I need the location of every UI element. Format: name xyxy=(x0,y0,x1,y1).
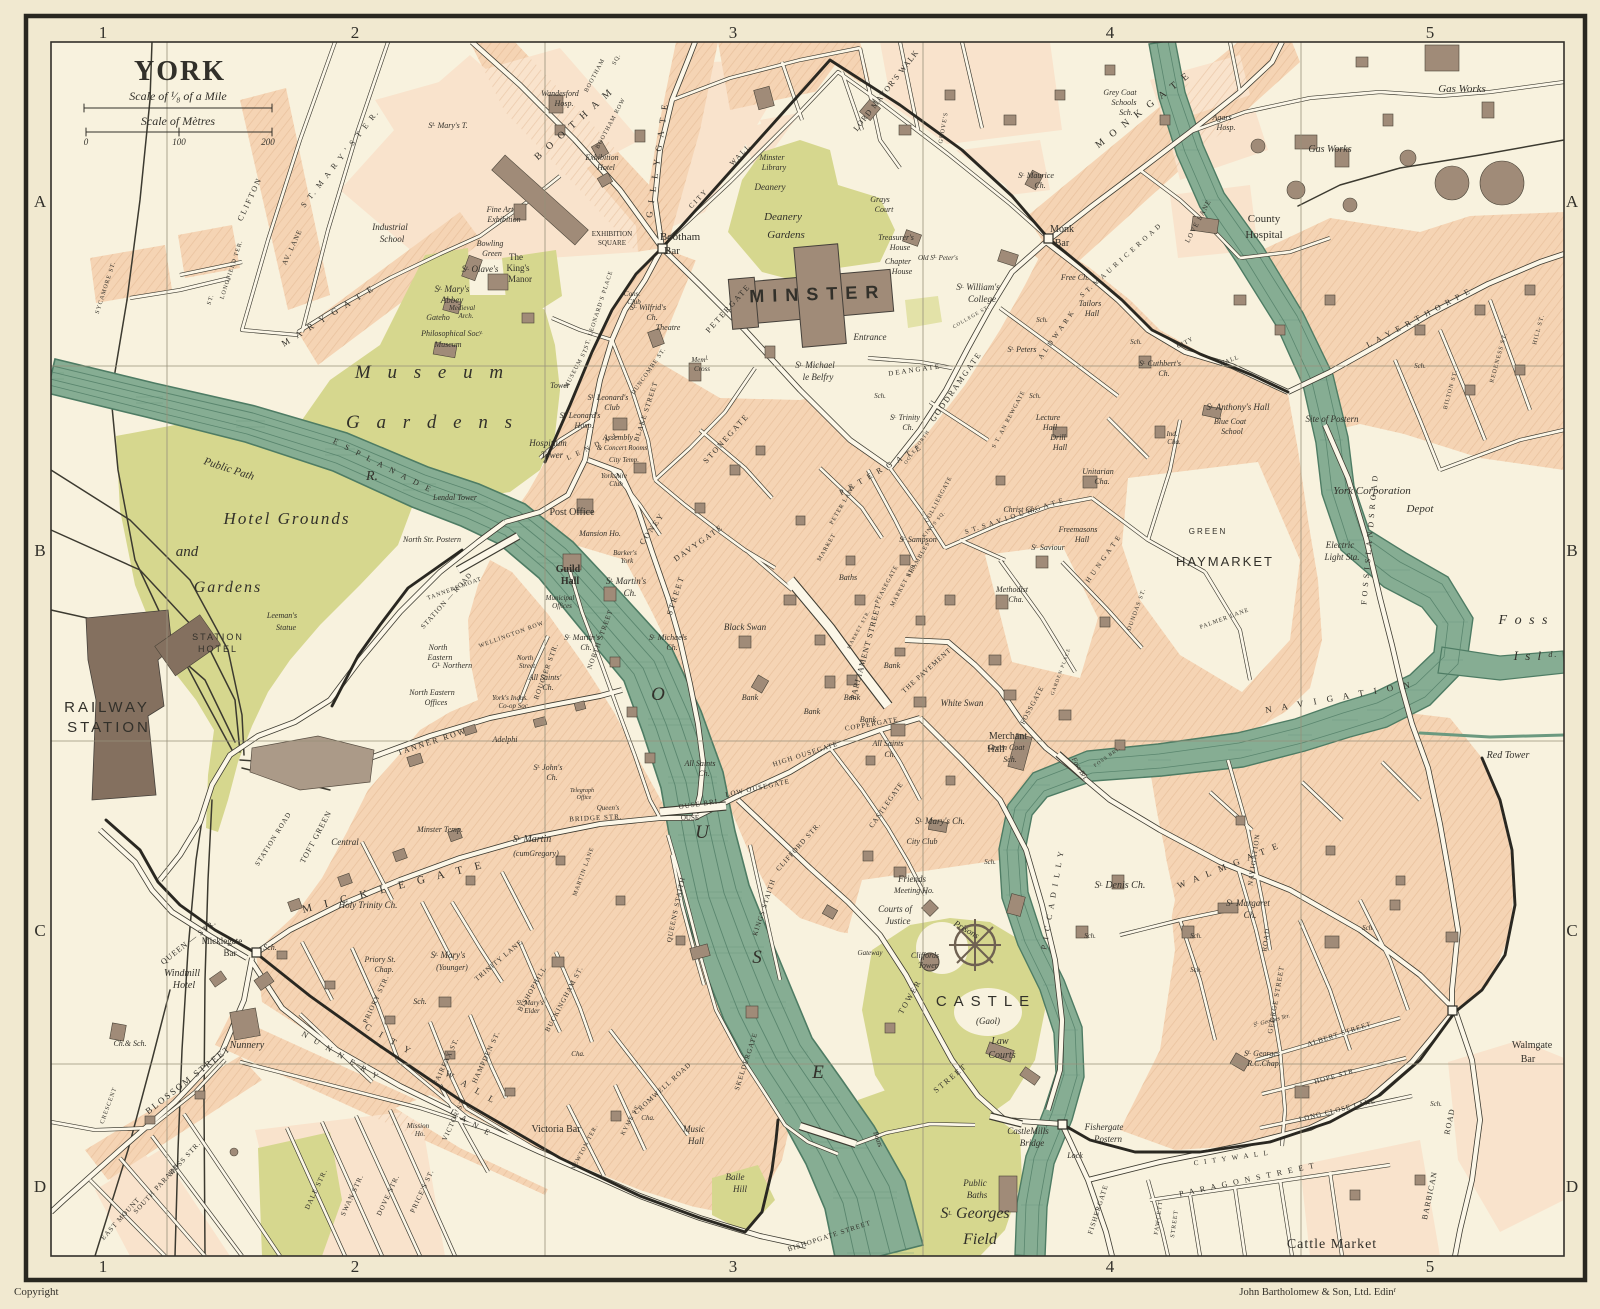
svg-text:2: 2 xyxy=(351,1257,360,1276)
svg-text:North Eastern: North Eastern xyxy=(408,688,455,697)
svg-text:C: C xyxy=(1566,921,1577,940)
svg-text:Hall: Hall xyxy=(1042,423,1058,432)
svg-text:Freemasons: Freemasons xyxy=(1058,525,1098,534)
svg-text:York: York xyxy=(621,557,634,565)
svg-text:Hosp.: Hosp. xyxy=(554,99,574,108)
svg-text:Free Ch.: Free Ch. xyxy=(1060,273,1089,282)
svg-text:Street: Street xyxy=(519,662,536,670)
svg-text:Tower: Tower xyxy=(541,450,564,460)
svg-text:The: The xyxy=(509,252,523,262)
svg-text:and: and xyxy=(176,544,199,560)
svg-text:C: C xyxy=(34,921,45,940)
svg-text:B: B xyxy=(34,541,45,560)
svg-text:(Younger): (Younger) xyxy=(436,963,468,972)
svg-text:Fishergate: Fishergate xyxy=(1084,1122,1124,1132)
svg-text:Cha.: Cha. xyxy=(641,1114,655,1122)
svg-text:Agars: Agars xyxy=(1211,113,1231,122)
svg-text:Yorkshire: Yorkshire xyxy=(601,472,627,480)
svg-text:Barker's: Barker's xyxy=(613,549,637,557)
svg-text:Ch.: Ch. xyxy=(666,643,677,652)
svg-text:Tower: Tower xyxy=(918,961,939,970)
svg-text:Gas Works: Gas Works xyxy=(1438,83,1486,95)
svg-text:Justice: Justice xyxy=(886,916,911,926)
svg-text:Field: Field xyxy=(962,1231,998,1248)
svg-text:Hotel: Hotel xyxy=(172,980,195,991)
svg-text:Leeman's: Leeman's xyxy=(266,611,297,620)
svg-text:John Bartholomew & Son, Ltd. E: John Bartholomew & Son, Ltd. Edinr xyxy=(1239,1286,1396,1298)
svg-text:1: 1 xyxy=(99,1257,108,1276)
svg-text:Light Sta.: Light Sta. xyxy=(1323,552,1359,562)
svg-text:Sch.: Sch. xyxy=(1430,1100,1442,1108)
svg-text:St. Cuthbert's: St. Cuthbert's xyxy=(1139,359,1181,368)
svg-text:Sch.: Sch. xyxy=(1003,755,1017,764)
svg-text:St. Denis Ch.: St. Denis Ch. xyxy=(1095,880,1146,891)
svg-text:R.: R. xyxy=(365,469,378,484)
svg-text:Hosp.: Hosp. xyxy=(574,421,594,430)
svg-text:Bank: Bank xyxy=(884,661,901,670)
svg-text:HOTEL: HOTEL xyxy=(198,644,238,654)
svg-text:Bar: Bar xyxy=(664,245,680,257)
svg-text:Gardens: Gardens xyxy=(194,579,263,596)
svg-text:All Saints: All Saints xyxy=(872,739,904,748)
svg-text:Cons.: Cons. xyxy=(624,290,640,298)
svg-text:Exhibition: Exhibition xyxy=(584,153,618,162)
svg-text:Court: Court xyxy=(875,205,894,214)
svg-text:St. Mary's Ch.: St. Mary's Ch. xyxy=(915,816,965,826)
svg-text:Hall: Hall xyxy=(561,576,580,587)
svg-text:Hospital: Hospital xyxy=(1245,229,1282,241)
svg-text:Chapter: Chapter xyxy=(885,257,912,266)
svg-text:Ch.: Ch. xyxy=(646,313,657,322)
svg-text:Sch.: Sch. xyxy=(1190,932,1202,940)
svg-text:Blue Coat: Blue Coat xyxy=(1214,417,1247,426)
svg-text:Green Coat: Green Coat xyxy=(987,743,1025,752)
svg-text:Friends: Friends xyxy=(897,874,926,884)
svg-text:Courts: Courts xyxy=(988,1050,1015,1061)
svg-text:Club: Club xyxy=(609,480,623,488)
svg-text:Sch.: Sch. xyxy=(874,392,886,400)
svg-text:Electric: Electric xyxy=(1325,540,1355,550)
svg-text:Sch.: Sch. xyxy=(984,858,996,866)
svg-text:Bar: Bar xyxy=(1521,1054,1536,1065)
svg-text:Offices: Offices xyxy=(425,698,448,707)
svg-text:Nunnery: Nunnery xyxy=(229,1040,265,1051)
svg-text:St. Anthony's Hall: St. Anthony's Hall xyxy=(1207,402,1270,412)
svg-text:Hotel: Hotel xyxy=(596,163,616,172)
svg-text:Micklegate: Micklegate xyxy=(202,936,242,946)
svg-text:Sch.: Sch. xyxy=(1414,362,1426,370)
svg-text:Victoria Bar: Victoria Bar xyxy=(531,1124,581,1135)
svg-text:Sch.: Sch. xyxy=(1362,924,1374,932)
svg-text:Hill: Hill xyxy=(732,1184,748,1194)
svg-text:Minster Temp.: Minster Temp. xyxy=(416,825,463,834)
svg-text:Minster: Minster xyxy=(759,153,786,162)
svg-text:5: 5 xyxy=(1426,23,1435,42)
svg-text:Museum: Museum xyxy=(433,340,461,349)
svg-text:Deanery: Deanery xyxy=(763,211,802,223)
svg-text:City Temp.: City Temp. xyxy=(609,456,639,464)
svg-text:Monk: Monk xyxy=(1050,224,1074,235)
svg-text:Cha.: Cha. xyxy=(1008,595,1023,604)
svg-text:Telegraph: Telegraph xyxy=(570,788,594,794)
svg-text:OUSE: OUSE xyxy=(681,814,699,822)
svg-text:Ch.: Ch. xyxy=(884,750,895,759)
svg-text:Green: Green xyxy=(482,249,502,258)
svg-text:Ch.: Ch. xyxy=(580,643,591,652)
svg-text:Ch.: Ch. xyxy=(1158,369,1169,378)
svg-text:Cha.: Cha. xyxy=(1094,477,1109,486)
svg-text:EXHIBITION: EXHIBITION xyxy=(592,230,632,238)
svg-text:Library: Library xyxy=(761,163,787,172)
svg-text:Baths: Baths xyxy=(967,1190,988,1200)
svg-text:Arch.: Arch. xyxy=(457,312,473,320)
svg-text:Sch.: Sch. xyxy=(1084,932,1096,940)
svg-text:RAILWAY: RAILWAY xyxy=(64,699,150,716)
svg-text:Hall: Hall xyxy=(1074,535,1090,544)
svg-text:Scale of ¹⁄₈ of a Mile: Scale of ¹⁄₈ of a Mile xyxy=(129,89,227,103)
svg-text:A: A xyxy=(1566,192,1579,211)
svg-text:F o s s: F o s s xyxy=(1498,613,1550,628)
svg-text:D: D xyxy=(1566,1177,1578,1196)
svg-text:HAYMARKET: HAYMARKET xyxy=(1176,554,1274,569)
svg-text:City Club: City Club xyxy=(907,837,938,846)
svg-text:Drill: Drill xyxy=(1049,433,1066,442)
svg-text:Gateho: Gateho xyxy=(426,313,450,322)
svg-text:Sch.: Sch. xyxy=(263,943,277,952)
svg-text:Courts of: Courts of xyxy=(878,904,913,914)
svg-text:Bowling: Bowling xyxy=(477,239,504,248)
svg-text:0: 0 xyxy=(84,137,89,147)
svg-text:Grays: Grays xyxy=(870,195,890,204)
svg-text:Gardens: Gardens xyxy=(767,229,804,241)
svg-text:100: 100 xyxy=(172,137,186,147)
svg-text:Offices: Offices xyxy=(552,602,572,610)
svg-text:le Belfry: le Belfry xyxy=(803,372,834,382)
svg-text:Hall: Hall xyxy=(1084,309,1100,318)
svg-text:R.C.Chap.: R.C.Chap. xyxy=(1246,1059,1281,1068)
svg-text:Cliffords: Cliffords xyxy=(911,951,939,960)
svg-text:Hospitium: Hospitium xyxy=(528,438,567,448)
svg-text:Chap.: Chap. xyxy=(374,965,393,974)
svg-text:School: School xyxy=(380,234,405,244)
svg-text:Hosp.: Hosp. xyxy=(1216,123,1236,132)
svg-text:Depot: Depot xyxy=(1406,503,1435,515)
svg-text:Bridge: Bridge xyxy=(1020,1138,1045,1148)
svg-text:Ch.: Ch. xyxy=(698,769,709,778)
svg-text:O: O xyxy=(651,684,665,705)
svg-text:White Swan: White Swan xyxy=(941,698,984,708)
svg-text:Queen's: Queen's xyxy=(597,804,620,812)
svg-text:E: E xyxy=(811,1062,824,1083)
svg-text:Sch.: Sch. xyxy=(1036,316,1048,324)
svg-text:Guild: Guild xyxy=(556,564,581,575)
svg-text:Post Office: Post Office xyxy=(549,507,595,518)
svg-text:(cumGregory): (cumGregory) xyxy=(513,849,559,858)
svg-text:Hall: Hall xyxy=(1052,443,1068,452)
svg-text:Central: Central xyxy=(331,837,359,847)
svg-text:Red Tower: Red Tower xyxy=(1486,750,1530,761)
svg-text:Cross: Cross xyxy=(694,365,710,373)
svg-text:Fine Art: Fine Art xyxy=(486,205,515,214)
svg-text:Mission: Mission xyxy=(406,1122,430,1130)
svg-text:Priory St.: Priory St. xyxy=(363,955,395,964)
svg-text:College: College xyxy=(968,294,996,304)
svg-text:Meeting Ho.: Meeting Ho. xyxy=(893,886,934,895)
svg-text:4: 4 xyxy=(1106,1257,1115,1276)
svg-text:Cha.: Cha. xyxy=(1167,438,1181,446)
svg-text:Methodist: Methodist xyxy=(995,585,1029,594)
svg-text:Statue: Statue xyxy=(276,623,296,632)
svg-text:G a r d e n s: G a r d e n s xyxy=(346,412,518,433)
svg-text:Ch.: Ch. xyxy=(1244,910,1257,920)
svg-text:Bar: Bar xyxy=(224,948,237,958)
svg-text:Lendal Tower: Lendal Tower xyxy=(432,493,478,502)
svg-text:Adelphi: Adelphi xyxy=(492,735,518,744)
svg-text:Scale of Mètres: Scale of Mètres xyxy=(141,114,216,128)
svg-text:Law: Law xyxy=(990,1036,1009,1047)
svg-text:Sch.: Sch. xyxy=(413,997,427,1006)
svg-text:North: North xyxy=(516,654,534,662)
svg-text:Deanery: Deanery xyxy=(754,182,786,192)
svg-text:3: 3 xyxy=(729,23,738,42)
svg-text:Unitarian: Unitarian xyxy=(1082,467,1114,476)
svg-text:Tailors: Tailors xyxy=(1079,299,1101,308)
svg-text:Baile: Baile xyxy=(726,1172,745,1182)
svg-text:D: D xyxy=(34,1177,46,1196)
svg-text:Hotel Grounds: Hotel Grounds xyxy=(223,509,351,528)
svg-text:Office: Office xyxy=(577,794,592,801)
svg-text:All Saints: All Saints xyxy=(684,759,716,768)
svg-text:Lock: Lock xyxy=(1066,1151,1083,1160)
svg-text:Hall: Hall xyxy=(687,1136,705,1146)
svg-text:Co-op Soc.: Co-op Soc. xyxy=(498,702,529,710)
svg-text:4: 4 xyxy=(1106,23,1115,42)
svg-text:Club: Club xyxy=(627,298,641,306)
svg-text:North Str. Postern: North Str. Postern xyxy=(402,535,461,544)
svg-text:2: 2 xyxy=(351,23,360,42)
svg-text:County: County xyxy=(1248,213,1281,225)
svg-text:Ind.: Ind. xyxy=(1165,430,1177,438)
svg-text:1: 1 xyxy=(99,23,108,42)
svg-text:Industrial: Industrial xyxy=(371,222,408,232)
svg-text:Eastern: Eastern xyxy=(427,653,453,662)
svg-text:Sch.: Sch. xyxy=(1029,392,1041,400)
svg-text:Music: Music xyxy=(682,1124,705,1134)
svg-text:Sch.: Sch. xyxy=(1190,966,1202,974)
svg-text:Cha.: Cha. xyxy=(571,1050,585,1058)
svg-text:King's: King's xyxy=(506,263,530,273)
svg-text:Ho.: Ho. xyxy=(414,1130,426,1138)
svg-text:B: B xyxy=(1566,541,1577,560)
svg-text:Club: Club xyxy=(604,403,620,412)
svg-text:House: House xyxy=(889,243,911,252)
svg-text:Bank: Bank xyxy=(804,707,821,716)
svg-text:Walmgate: Walmgate xyxy=(1512,1040,1553,1051)
svg-text:S: S xyxy=(752,947,762,968)
svg-text:200: 200 xyxy=(261,137,275,147)
svg-text:Ch.: Ch. xyxy=(1034,181,1045,190)
svg-text:M u s e u m: M u s e u m xyxy=(354,362,509,383)
svg-text:GREEN: GREEN xyxy=(1189,527,1227,536)
svg-text:Old St. Peter's: Old St. Peter's xyxy=(918,254,958,262)
svg-text:Philosophical Socy.: Philosophical Socy. xyxy=(420,329,483,338)
svg-text:Cattle Market: Cattle Market xyxy=(1287,1237,1377,1252)
svg-text:North: North xyxy=(428,643,448,652)
svg-text:Ch.: Ch. xyxy=(624,588,637,598)
svg-text:5: 5 xyxy=(1426,1257,1435,1276)
svg-text:STATION: STATION xyxy=(67,719,151,736)
svg-text:Windmill: Windmill xyxy=(164,968,200,979)
svg-text:Treasurer's: Treasurer's xyxy=(878,233,914,242)
svg-text:Ch.: Ch. xyxy=(902,423,913,432)
svg-text:Entrance: Entrance xyxy=(853,332,887,342)
svg-text:Lecture: Lecture xyxy=(1035,413,1061,422)
svg-text:Bootham: Bootham xyxy=(660,231,701,243)
svg-text:SQUARE: SQUARE xyxy=(598,239,626,247)
svg-text:Copyright: Copyright xyxy=(14,1286,59,1298)
svg-text:3: 3 xyxy=(729,1257,738,1276)
svg-text:U: U xyxy=(695,822,710,843)
svg-text:Gateway: Gateway xyxy=(858,949,884,957)
svg-text:Theatre: Theatre xyxy=(656,323,681,332)
svg-text:Wandesford: Wandesford xyxy=(541,89,580,98)
svg-text:Gas Works: Gas Works xyxy=(1308,144,1351,155)
svg-text:Grey Coat: Grey Coat xyxy=(1103,88,1137,97)
svg-text:Black Swan: Black Swan xyxy=(724,622,767,632)
svg-text:YORK: YORK xyxy=(134,56,226,87)
svg-text:Postern: Postern xyxy=(1093,1134,1122,1144)
svg-text:(Gaol): (Gaol) xyxy=(976,1016,1000,1026)
svg-text:Municipal: Municipal xyxy=(545,594,575,602)
svg-text:Sch.: Sch. xyxy=(1130,338,1142,346)
svg-text:Ch.: Ch. xyxy=(546,773,557,782)
svg-text:Baths: Baths xyxy=(839,573,857,582)
svg-text:Schools: Schools xyxy=(1112,98,1137,107)
svg-text:School: School xyxy=(1221,427,1244,436)
svg-text:Bank: Bank xyxy=(742,693,759,702)
svg-text:York's Indus.: York's Indus. xyxy=(492,694,528,702)
svg-text:Merchant: Merchant xyxy=(989,731,1028,742)
svg-text:A: A xyxy=(34,192,47,211)
svg-text:St. Michaels: St. Michaels xyxy=(649,633,687,642)
svg-text:CASTLE: CASTLE xyxy=(936,993,1036,1010)
svg-text:Bar: Bar xyxy=(1055,238,1070,249)
svg-text:Site of Postern: Site of Postern xyxy=(1306,414,1359,424)
svg-text:CastleMills: CastleMills xyxy=(1007,1126,1049,1136)
svg-text:Exhibition: Exhibition xyxy=(486,215,520,224)
svg-text:Medieval: Medieval xyxy=(448,304,475,312)
svg-text:House: House xyxy=(891,267,913,276)
svg-text:Ch.& Sch.: Ch.& Sch. xyxy=(113,1039,146,1048)
svg-text:Manor: Manor xyxy=(508,274,532,284)
svg-text:Mansion Ho.: Mansion Ho. xyxy=(578,529,621,538)
svg-text:STATION: STATION xyxy=(192,632,244,642)
svg-text:Public: Public xyxy=(962,1178,987,1188)
